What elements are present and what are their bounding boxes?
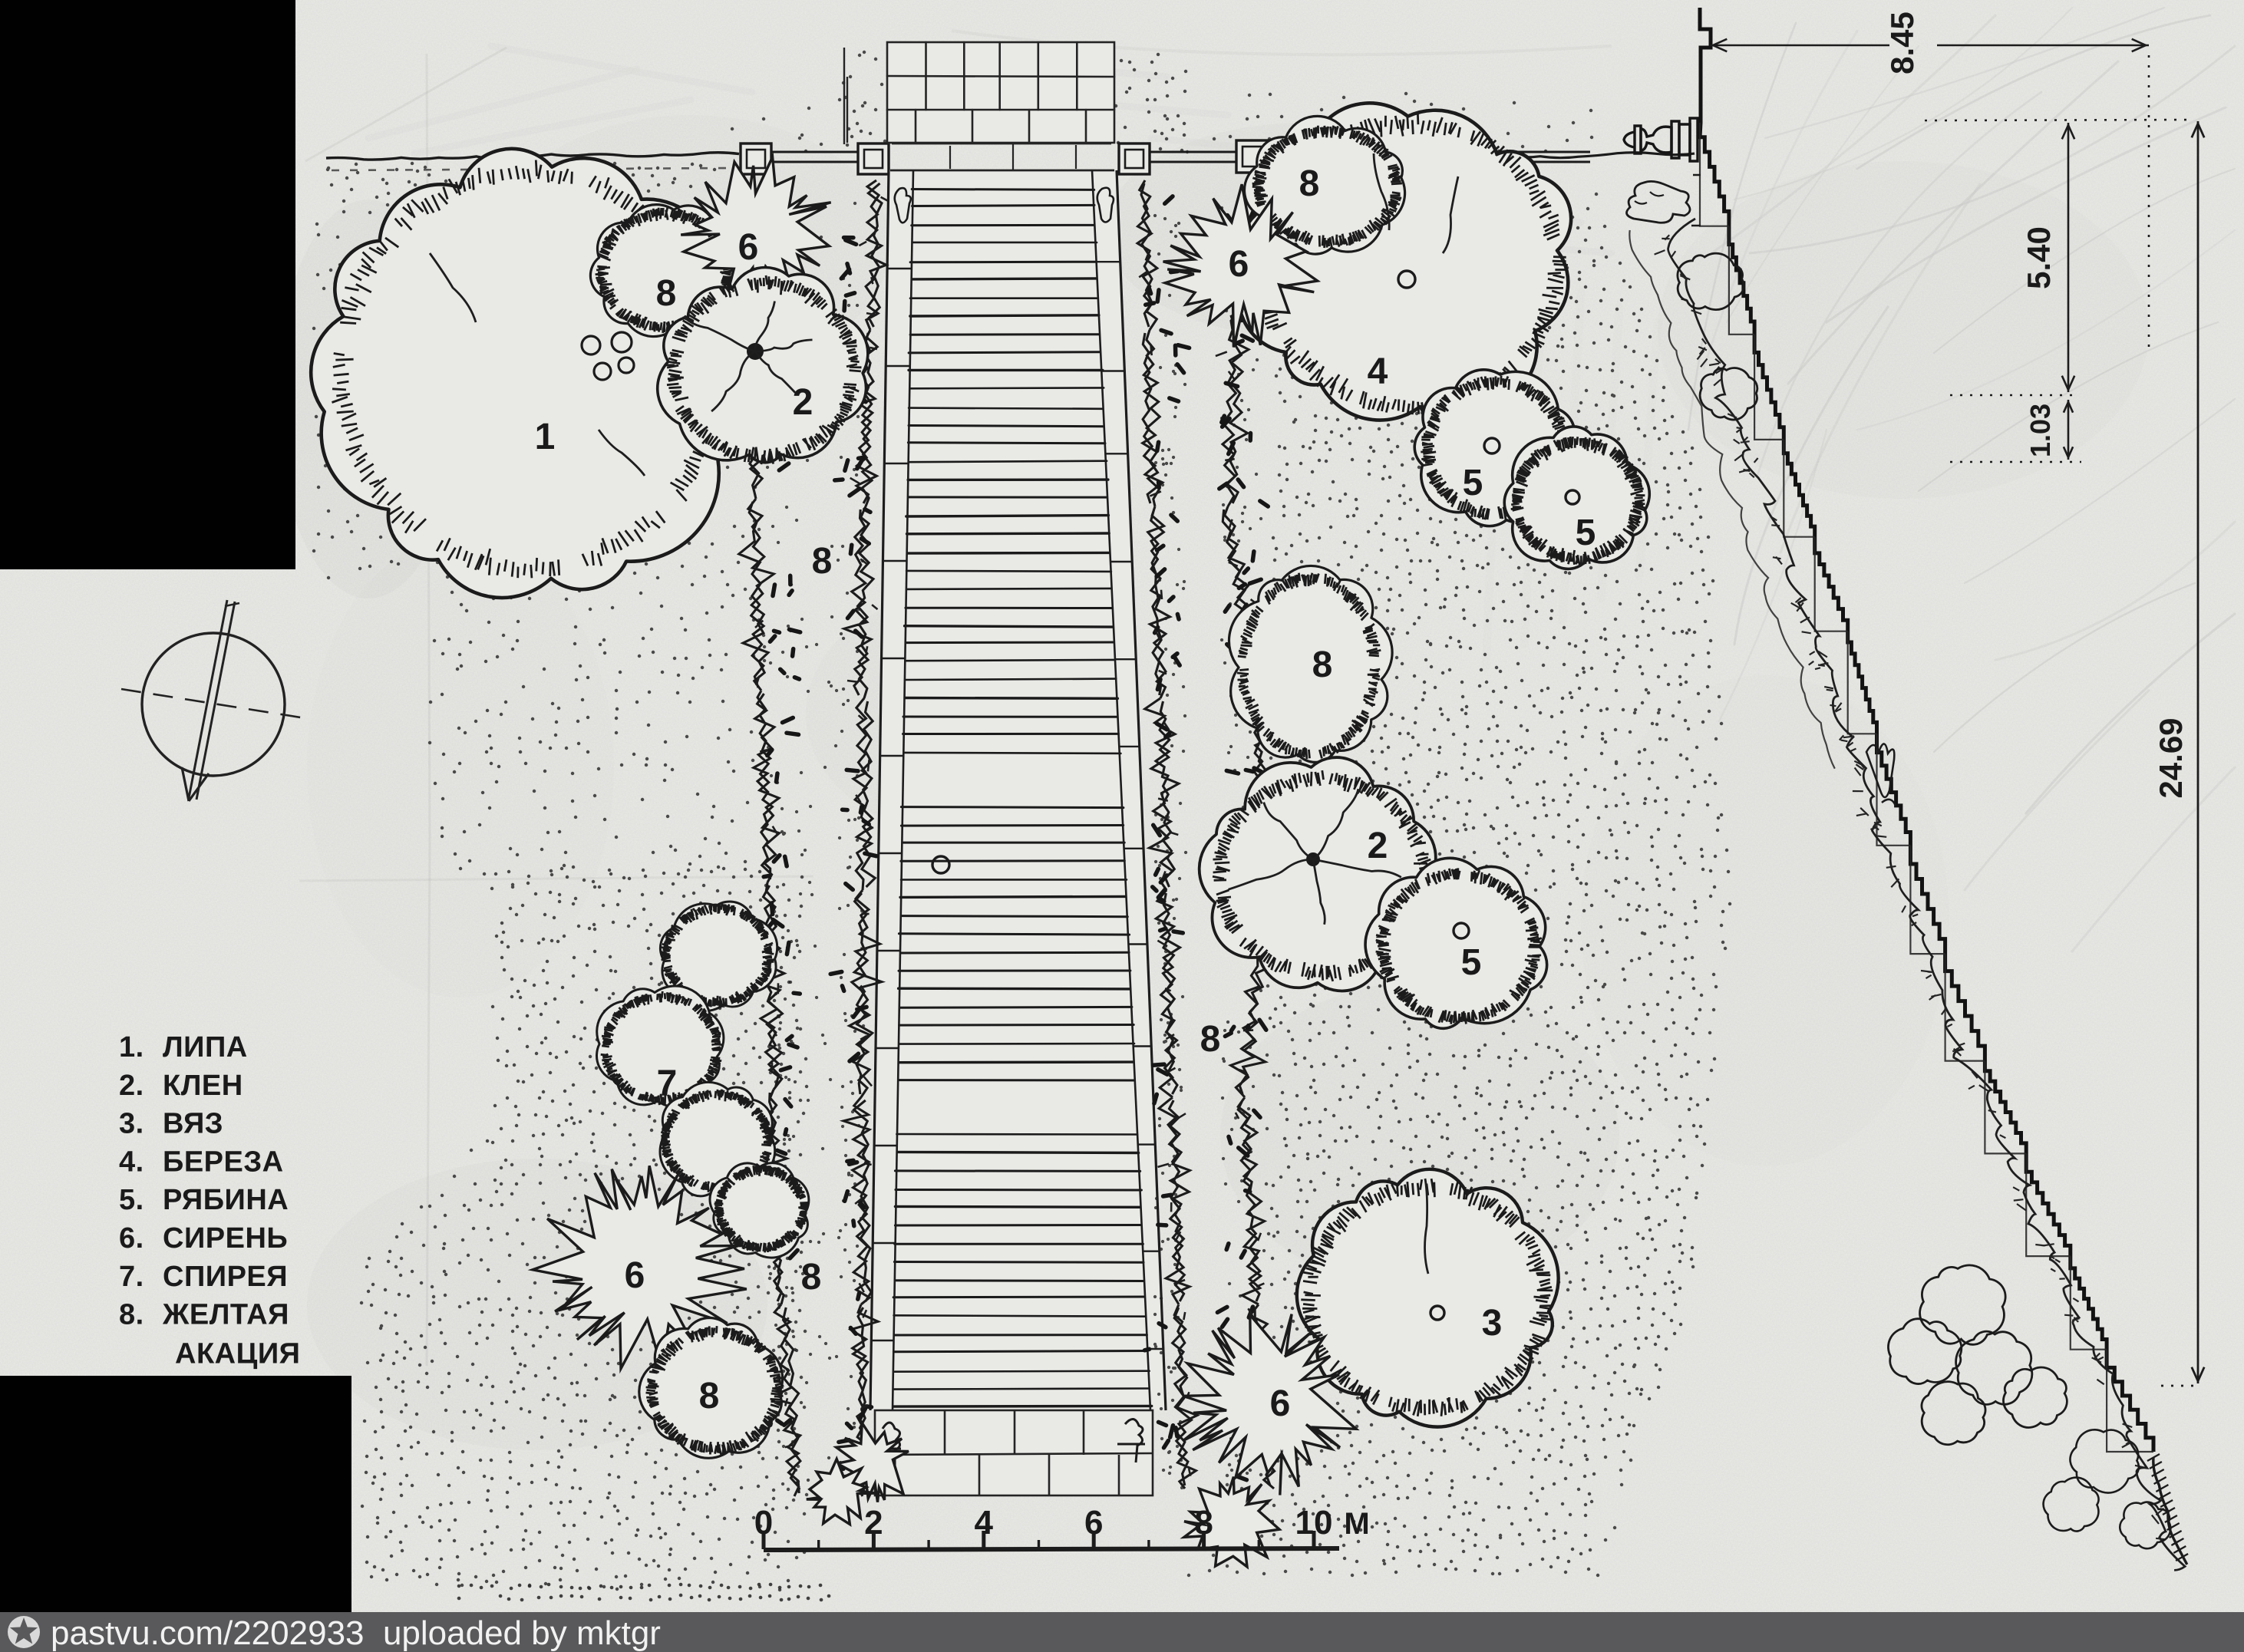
svg-text:СИРЕНЬ: СИРЕНЬ [163, 1222, 288, 1255]
svg-text:4: 4 [1368, 351, 1388, 392]
svg-text:6: 6 [625, 1255, 645, 1296]
svg-text:7.: 7. [119, 1261, 144, 1293]
svg-text:РЯБИНА: РЯБИНА [163, 1184, 289, 1216]
svg-text:КЛЕН: КЛЕН [163, 1070, 243, 1102]
svg-text:ЛИПА: ЛИПА [163, 1031, 248, 1063]
svg-text:2: 2 [864, 1504, 883, 1542]
svg-text:8: 8 [699, 1376, 720, 1416]
svg-text:2: 2 [793, 382, 813, 423]
svg-text:ЖЕЛТАЯ: ЖЕЛТАЯ [162, 1299, 289, 1331]
svg-text:4.: 4. [119, 1146, 144, 1178]
svg-text:8.45: 8.45 [1884, 12, 1920, 74]
svg-text:ВЯЗ: ВЯЗ [163, 1108, 223, 1140]
svg-text:0: 0 [754, 1504, 773, 1542]
svg-text:5.40: 5.40 [2021, 226, 2057, 289]
svg-text:5.: 5. [119, 1184, 144, 1216]
svg-text:5: 5 [1461, 942, 1482, 983]
svg-text:6.: 6. [119, 1222, 144, 1255]
svg-text:6: 6 [1270, 1383, 1291, 1424]
svg-text:24.69: 24.69 [2153, 717, 2189, 798]
svg-text:6: 6 [1084, 1504, 1103, 1542]
svg-text:1.03: 1.03 [2025, 404, 2056, 457]
svg-text:8: 8 [1299, 163, 1320, 204]
svg-text:СПИРЕЯ: СПИРЕЯ [163, 1261, 288, 1293]
svg-text:3.: 3. [119, 1108, 144, 1140]
svg-text:2: 2 [1368, 826, 1388, 866]
svg-text:6: 6 [738, 227, 759, 268]
svg-text:5: 5 [1463, 463, 1483, 503]
svg-text:8: 8 [656, 273, 677, 314]
svg-text:8: 8 [1312, 645, 1333, 685]
svg-text:М: М [1344, 1507, 1369, 1541]
svg-text:8: 8 [801, 1257, 822, 1298]
svg-text:10: 10 [1295, 1504, 1333, 1542]
svg-text:pastvu.com/2202933 uploaded b: pastvu.com/2202933 uploaded by mktgr [51, 1614, 661, 1652]
svg-text:8: 8 [1200, 1019, 1221, 1060]
svg-text:1: 1 [535, 417, 556, 457]
svg-text:2.: 2. [119, 1070, 144, 1102]
svg-text:7: 7 [657, 1063, 678, 1104]
svg-text:5: 5 [1576, 513, 1596, 553]
svg-text:АКАЦИЯ: АКАЦИЯ [175, 1337, 300, 1370]
svg-text:1.: 1. [119, 1031, 144, 1063]
svg-text:8: 8 [812, 541, 833, 582]
svg-text:БЕРЕЗА: БЕРЕЗА [163, 1146, 284, 1178]
svg-text:3: 3 [1482, 1303, 1503, 1344]
svg-text:6: 6 [1229, 244, 1249, 285]
svg-text:8.: 8. [119, 1299, 144, 1331]
svg-text:4: 4 [975, 1504, 994, 1542]
svg-text:8: 8 [1194, 1504, 1213, 1542]
